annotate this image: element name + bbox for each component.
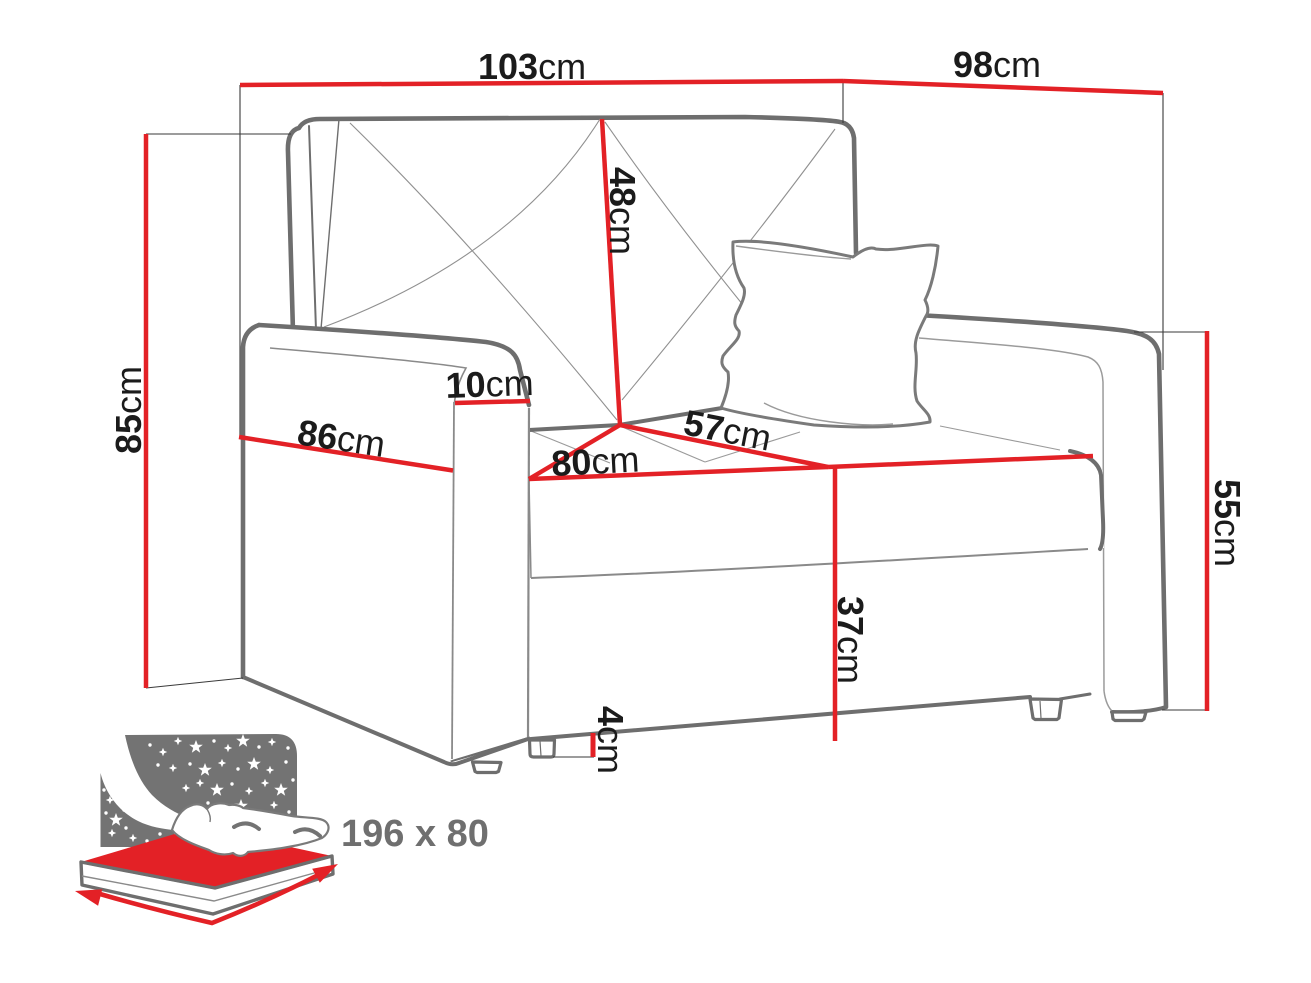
svg-text:103cm: 103cm bbox=[478, 46, 586, 87]
svg-text:196 x 80: 196 x 80 bbox=[341, 813, 489, 855]
svg-text:80cm: 80cm bbox=[550, 438, 640, 484]
svg-text:85cm: 85cm bbox=[108, 366, 149, 454]
svg-text:37cm: 37cm bbox=[830, 596, 871, 684]
svg-text:55cm: 55cm bbox=[1207, 479, 1248, 567]
svg-text:98cm: 98cm bbox=[953, 44, 1041, 85]
svg-text:10cm: 10cm bbox=[445, 362, 534, 406]
svg-text:4cm: 4cm bbox=[590, 706, 631, 774]
svg-text:48cm: 48cm bbox=[602, 167, 643, 255]
